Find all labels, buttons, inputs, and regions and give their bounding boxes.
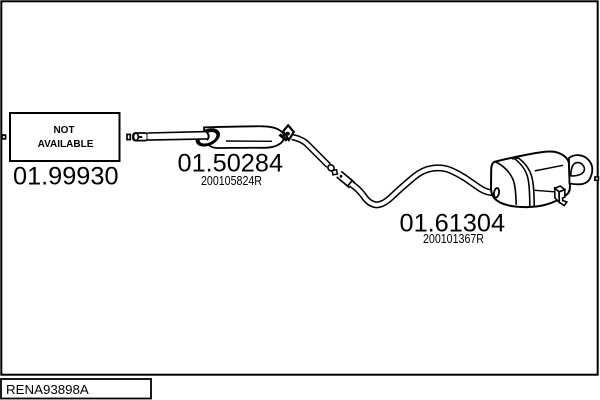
svg-text:200105824R: 200105824R [201,173,262,188]
svg-text:NOT: NOT [53,125,74,136]
svg-text:AVAILABLE: AVAILABLE [38,139,94,150]
svg-text:RENA93898A: RENA93898A [6,382,89,397]
svg-text:200101367R: 200101367R [423,231,484,246]
svg-text:01.99930: 01.99930 [13,163,119,191]
